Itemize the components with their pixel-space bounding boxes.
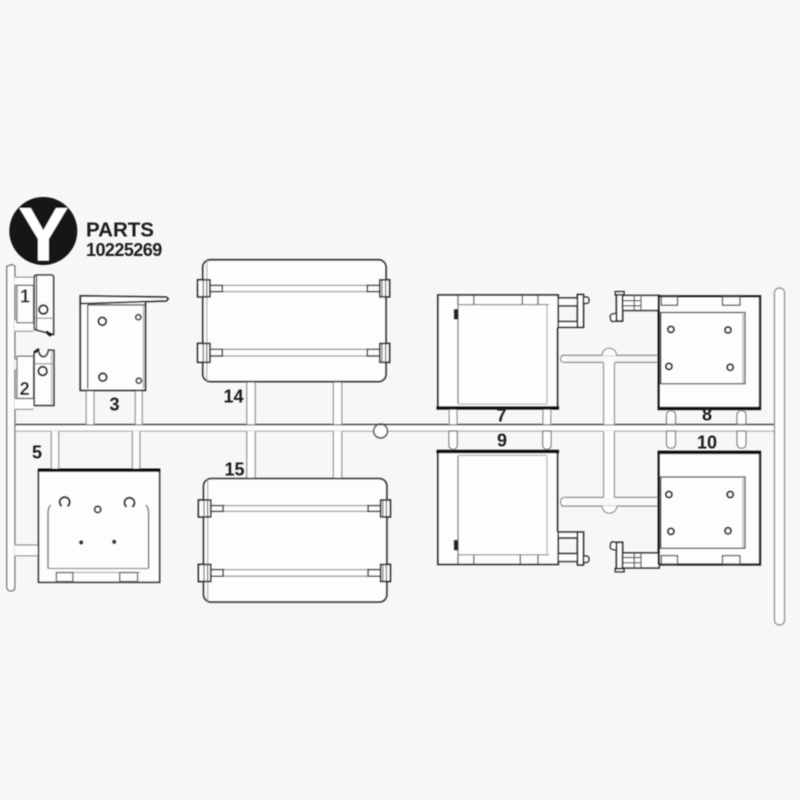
- svg-text:10225269: 10225269: [86, 240, 162, 260]
- svg-text:9: 9: [497, 431, 507, 451]
- svg-text:15: 15: [224, 460, 244, 480]
- svg-text:2: 2: [20, 379, 30, 399]
- svg-text:7: 7: [496, 406, 506, 426]
- svg-text:5: 5: [32, 443, 42, 463]
- svg-text:1: 1: [20, 287, 30, 307]
- svg-text:3: 3: [109, 395, 119, 415]
- svg-text:14: 14: [223, 387, 243, 407]
- svg-text:10: 10: [697, 433, 717, 453]
- svg-text:Y: Y: [18, 193, 69, 278]
- svg-text:8: 8: [702, 405, 712, 425]
- svg-text:PARTS: PARTS: [86, 219, 154, 242]
